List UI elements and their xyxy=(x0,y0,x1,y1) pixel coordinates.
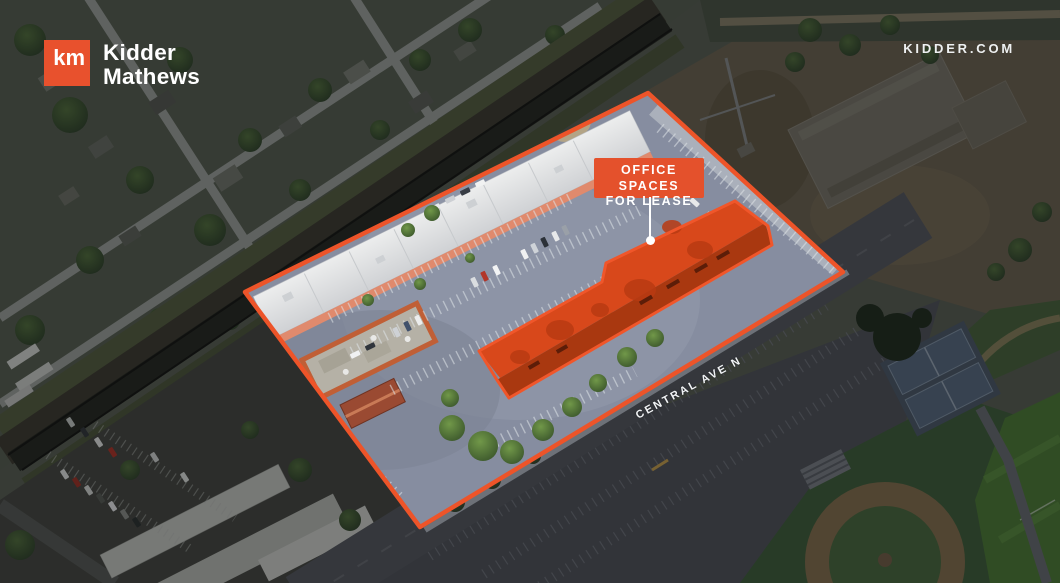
callout-line1: OFFICE SPACES xyxy=(594,163,704,194)
callout-leader-line xyxy=(649,197,651,238)
kidder-mathews-logo: km Kidder Mathews xyxy=(44,40,200,88)
logo-wordmark: Kidder Mathews xyxy=(103,41,200,88)
for-lease-callout: OFFICE SPACES FOR LEASE xyxy=(594,158,704,198)
logo-name-line2: Mathews xyxy=(103,65,200,89)
logo-mark-text: km xyxy=(53,47,85,69)
km-logo-icon: km xyxy=(44,40,90,86)
logo-name-line1: Kidder xyxy=(103,41,200,65)
website-url: KIDDER.COM xyxy=(903,41,1015,56)
aerial-marketing-image: km Kidder Mathews KIDDER.COM OFFICE SPAC… xyxy=(0,0,1060,583)
callout-leader-dot xyxy=(646,236,655,245)
